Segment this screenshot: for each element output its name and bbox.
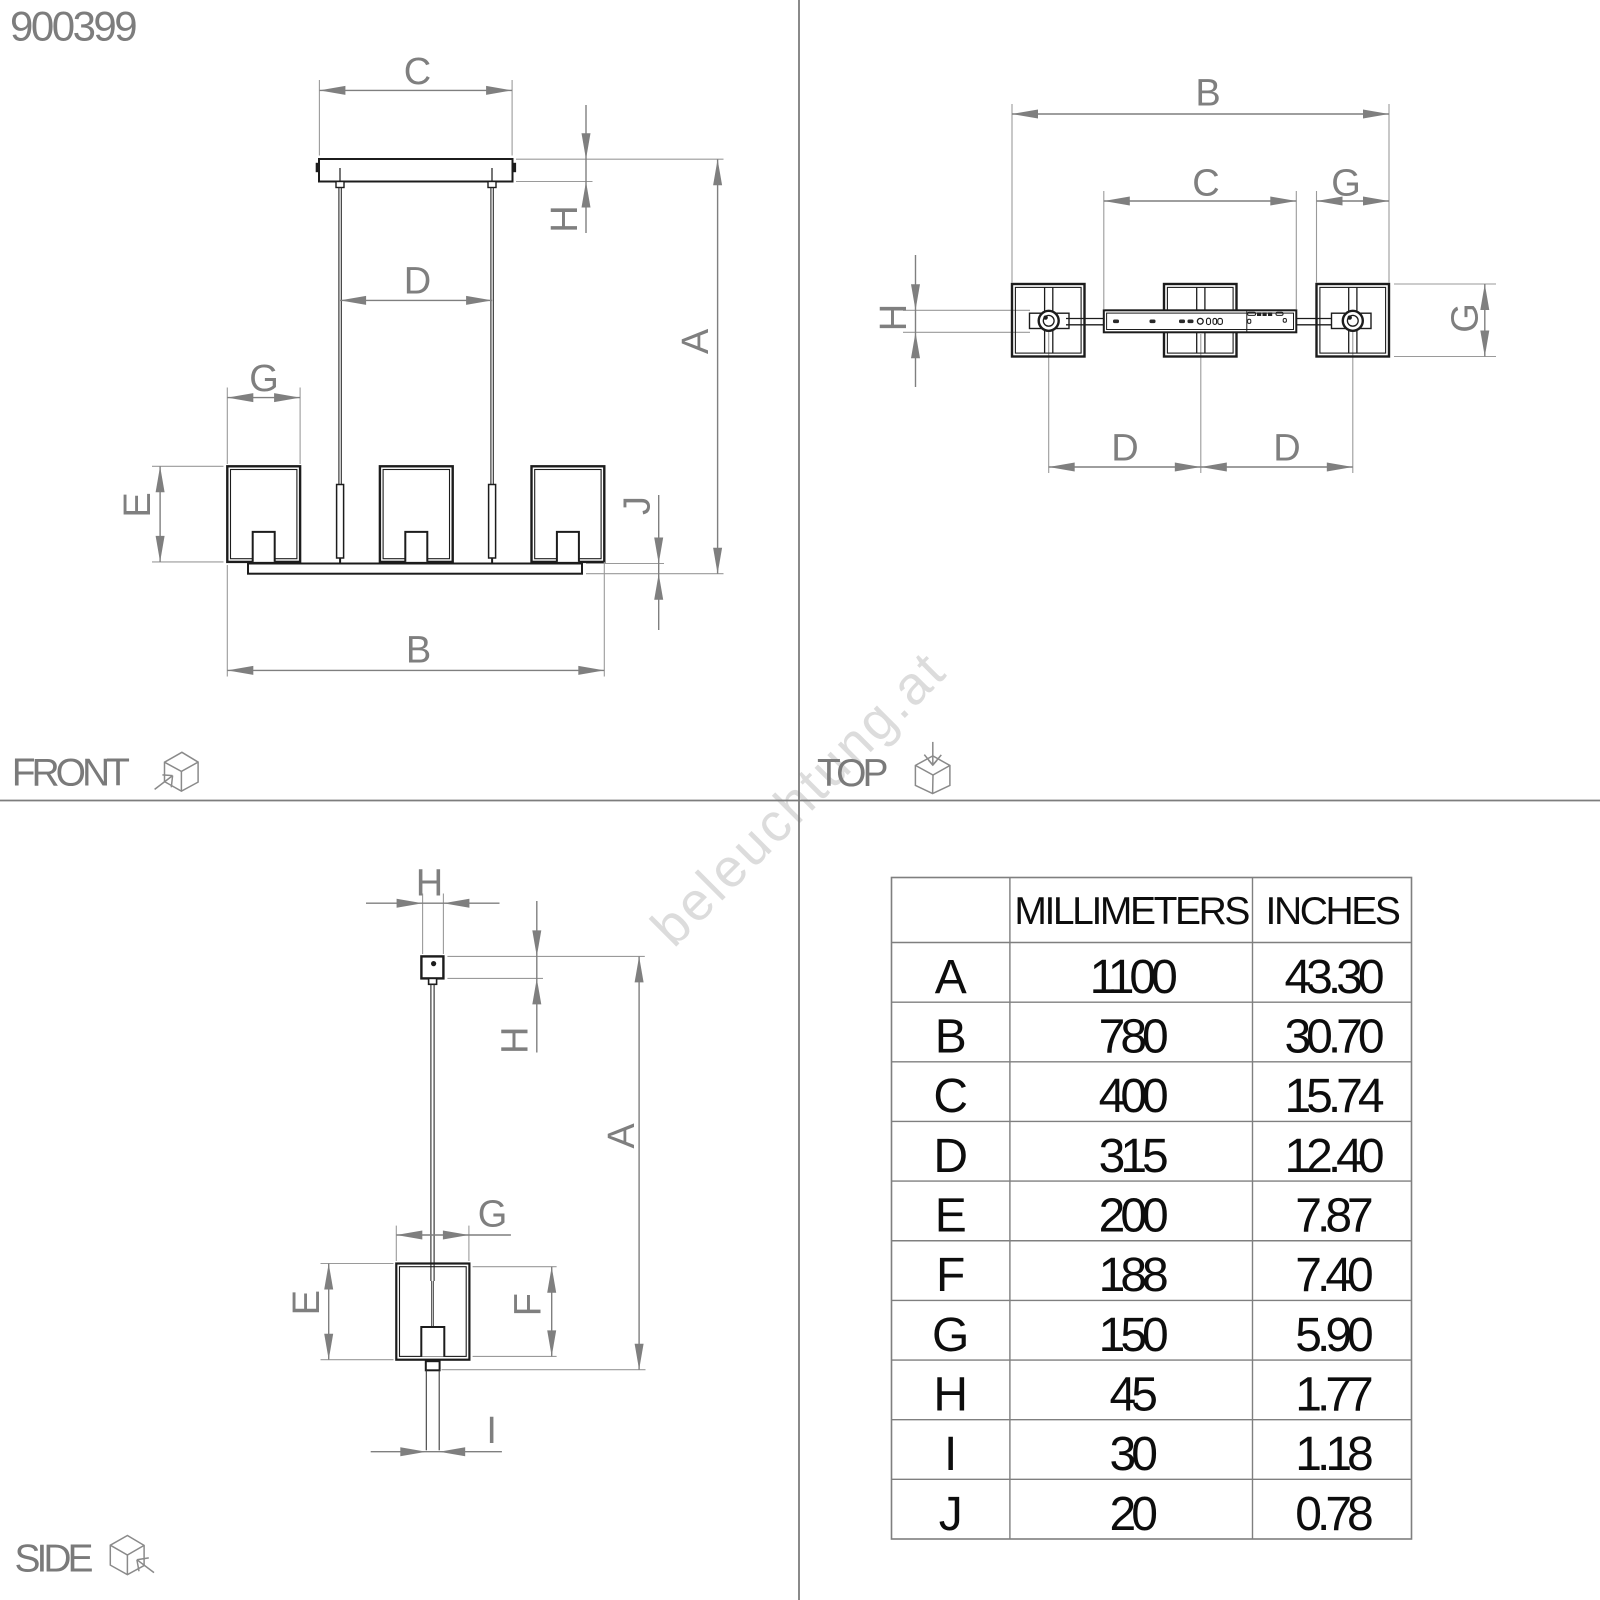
svg-text:TOP: TOP <box>817 752 886 795</box>
svg-text:H: H <box>933 1368 968 1421</box>
svg-text:1.18: 1.18 <box>1295 1428 1372 1481</box>
svg-text:SIDE: SIDE <box>15 1538 93 1581</box>
svg-text:D: D <box>1111 428 1138 470</box>
svg-text:188: 188 <box>1099 1249 1167 1302</box>
svg-text:E: E <box>935 1190 967 1243</box>
svg-text:1100: 1100 <box>1090 951 1177 1004</box>
svg-text:150: 150 <box>1099 1309 1167 1362</box>
svg-text:G: G <box>1445 303 1487 333</box>
svg-text:E: E <box>286 1290 328 1315</box>
svg-text:780: 780 <box>1099 1011 1167 1064</box>
svg-text:900399: 900399 <box>10 2 136 49</box>
svg-text:7.40: 7.40 <box>1295 1249 1372 1302</box>
svg-text:H: H <box>416 863 443 905</box>
svg-text:20: 20 <box>1110 1488 1157 1541</box>
svg-text:H: H <box>544 205 586 232</box>
svg-text:E: E <box>117 492 159 517</box>
svg-text:I: I <box>486 1410 497 1452</box>
svg-text:30: 30 <box>1110 1428 1157 1481</box>
svg-text:H: H <box>495 1027 537 1054</box>
svg-text:I: I <box>944 1428 957 1481</box>
svg-text:J: J <box>939 1488 963 1541</box>
svg-text:B: B <box>935 1011 967 1064</box>
svg-text:FRONT: FRONT <box>12 752 129 795</box>
svg-text:G: G <box>1331 163 1361 205</box>
svg-text:F: F <box>936 1249 965 1302</box>
svg-text:F: F <box>507 1293 549 1316</box>
svg-text:J: J <box>617 496 659 515</box>
svg-text:B: B <box>1195 73 1220 115</box>
svg-text:A: A <box>935 951 967 1004</box>
svg-text:315: 315 <box>1099 1130 1167 1183</box>
svg-text:INCHES: INCHES <box>1266 890 1400 933</box>
svg-text:A: A <box>675 328 717 354</box>
svg-text:15.74: 15.74 <box>1284 1070 1383 1123</box>
svg-text:G: G <box>932 1309 969 1362</box>
svg-text:C: C <box>933 1070 968 1123</box>
svg-text:5.90: 5.90 <box>1295 1309 1372 1362</box>
svg-text:C: C <box>1192 163 1219 205</box>
svg-text:0.78: 0.78 <box>1295 1488 1372 1541</box>
svg-text:D: D <box>933 1130 968 1183</box>
svg-text:30.70: 30.70 <box>1284 1011 1382 1064</box>
svg-text:45: 45 <box>1110 1368 1157 1421</box>
svg-text:400: 400 <box>1099 1070 1167 1123</box>
svg-text:12.40: 12.40 <box>1284 1130 1382 1183</box>
svg-text:B: B <box>406 630 431 672</box>
svg-text:D: D <box>1273 428 1300 470</box>
svg-text:G: G <box>249 358 279 400</box>
svg-text:D: D <box>404 261 431 303</box>
svg-text:H: H <box>873 304 915 331</box>
svg-text:200: 200 <box>1099 1190 1167 1243</box>
svg-text:C: C <box>404 51 431 93</box>
svg-text:43.30: 43.30 <box>1284 951 1382 1004</box>
svg-text:7.87: 7.87 <box>1295 1190 1372 1243</box>
svg-text:MILLIMETERS: MILLIMETERS <box>1014 890 1249 933</box>
svg-text:G: G <box>478 1194 508 1236</box>
svg-text:1.77: 1.77 <box>1295 1368 1372 1421</box>
svg-text:A: A <box>601 1123 643 1149</box>
